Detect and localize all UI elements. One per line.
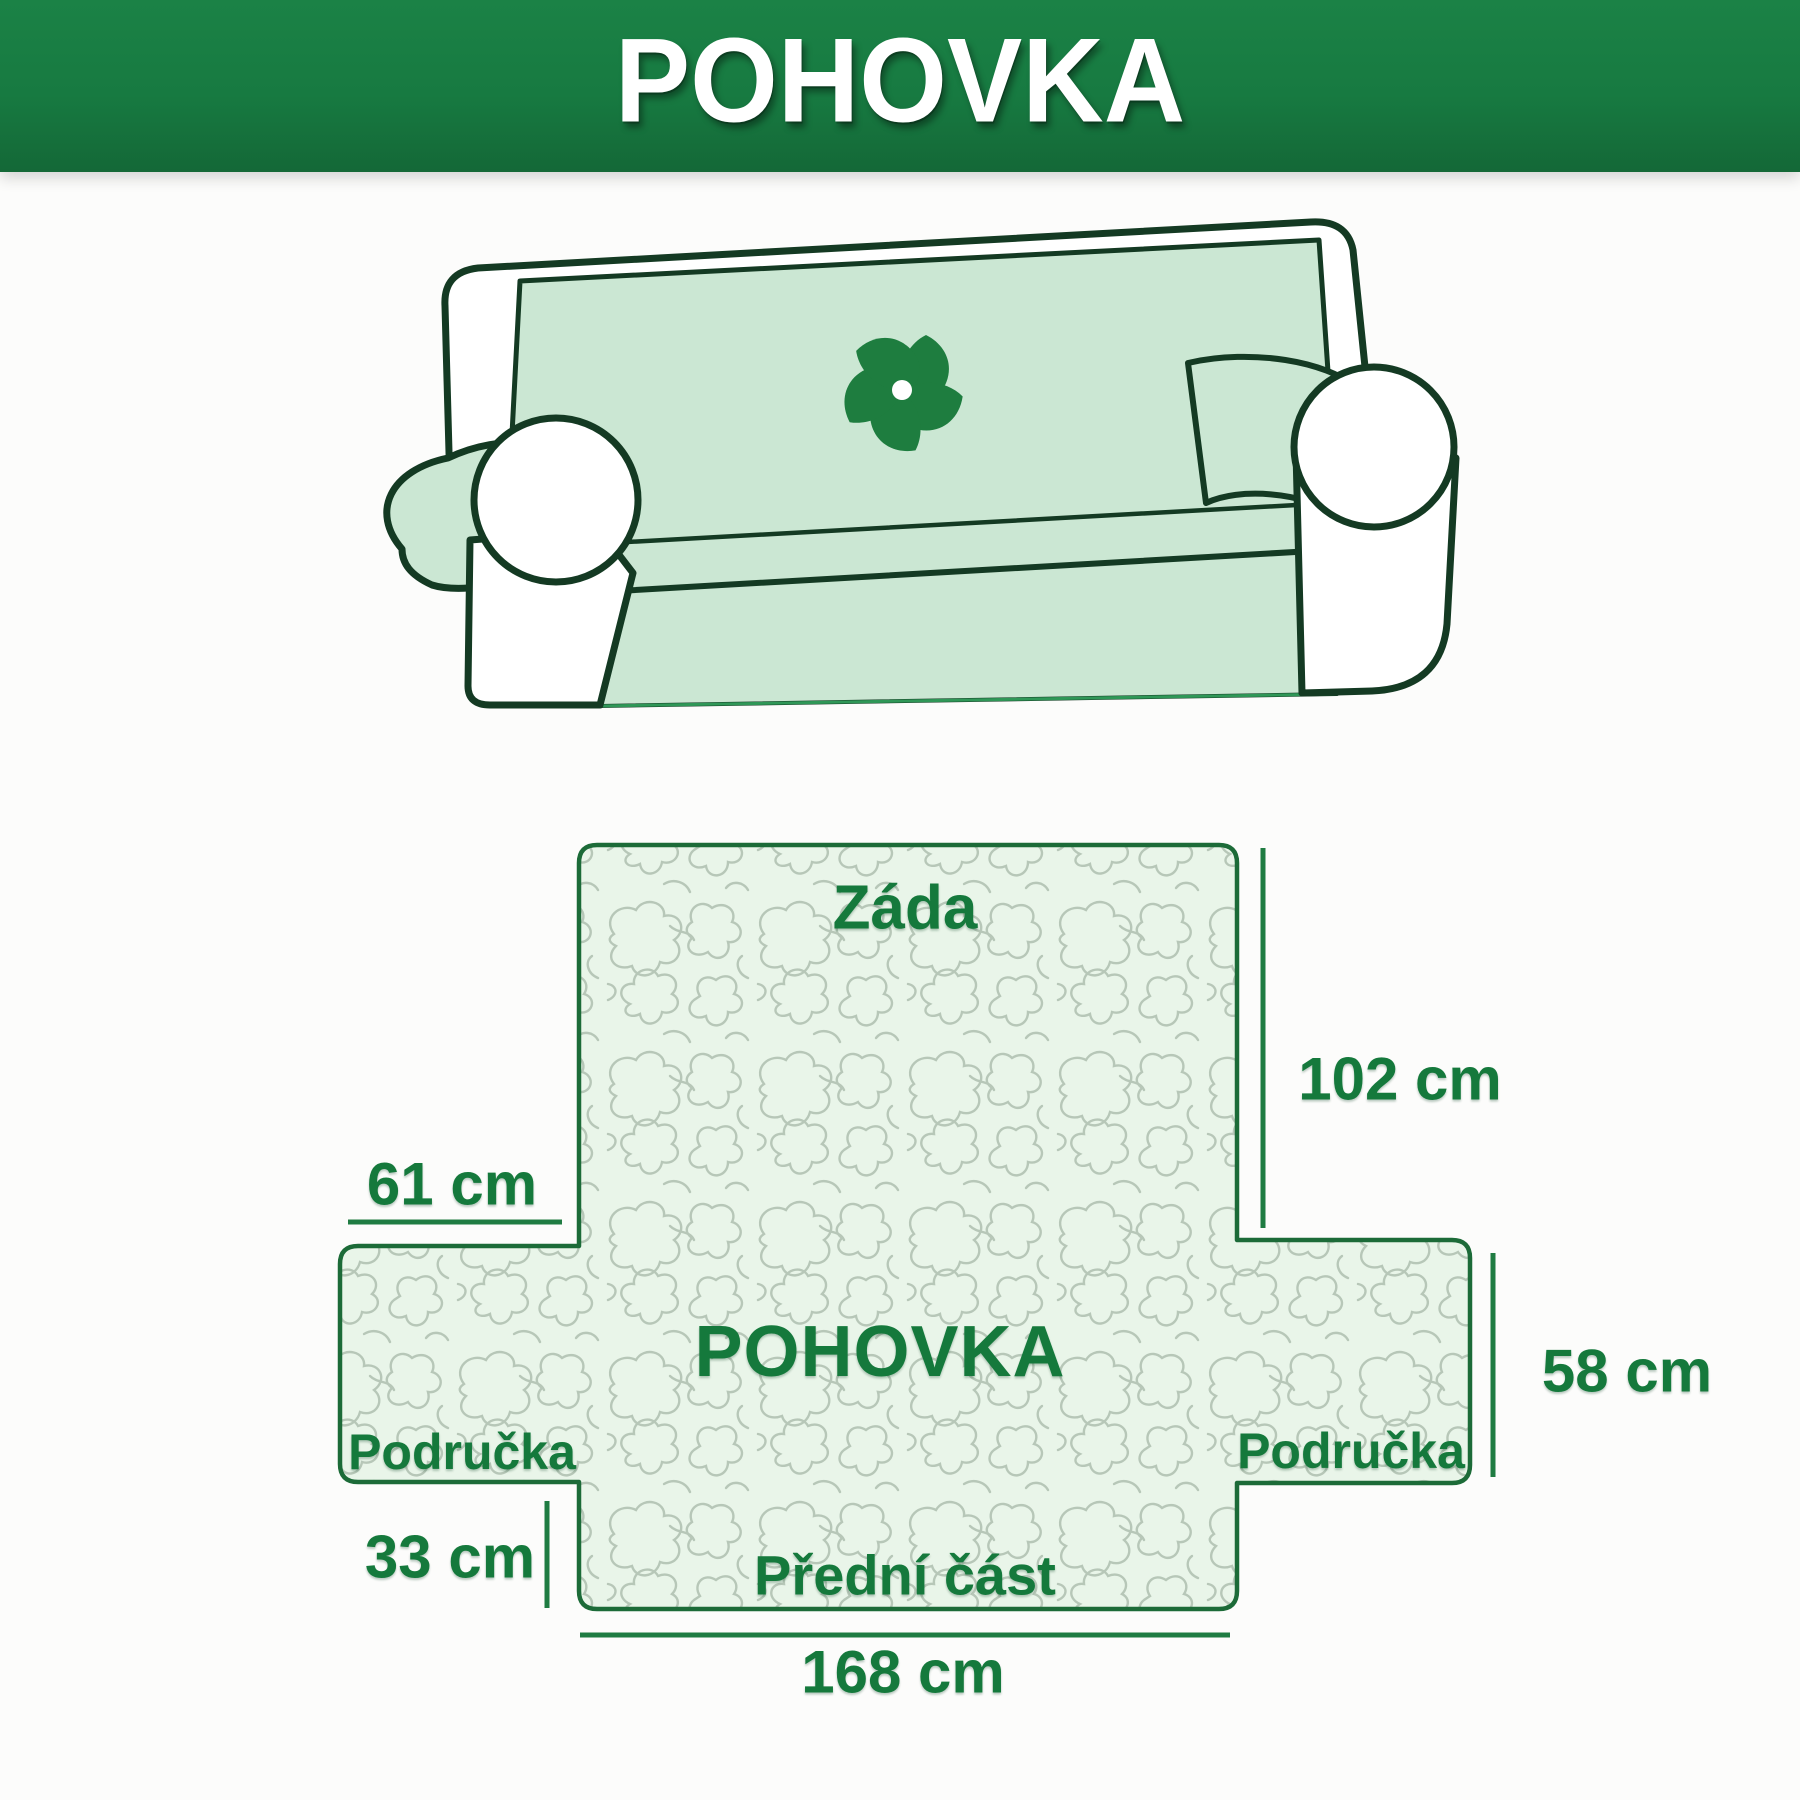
sofa-right-arm-roll (1294, 367, 1454, 527)
dim-total-width-label: 168 cm (801, 1638, 1005, 1707)
dim-front-height-label: 33 cm (365, 1523, 535, 1592)
page-title: POHOVKA (615, 11, 1185, 149)
dim-back-height-label: 102 cm (1298, 1045, 1502, 1114)
cover-outline-shape (340, 845, 1470, 1609)
front-section-label: Přední část (754, 1543, 1056, 1608)
sofa-left-arm (387, 418, 638, 705)
sofa-illustration (330, 195, 1490, 720)
left-arm-label: Područka (348, 1423, 576, 1481)
dim-arm-top-width-label: 61 cm (367, 1150, 537, 1219)
right-arm-label: Područka (1237, 1422, 1465, 1480)
center-label: POHOVKA (694, 1311, 1065, 1393)
back-section-label: Záda (833, 873, 978, 944)
poster: POHOVKA (0, 0, 1800, 1800)
sofa-left-arm-roll (474, 418, 638, 582)
header-banner: POHOVKA (0, 0, 1800, 172)
dim-arm-height-label: 58 cm (1542, 1337, 1712, 1406)
